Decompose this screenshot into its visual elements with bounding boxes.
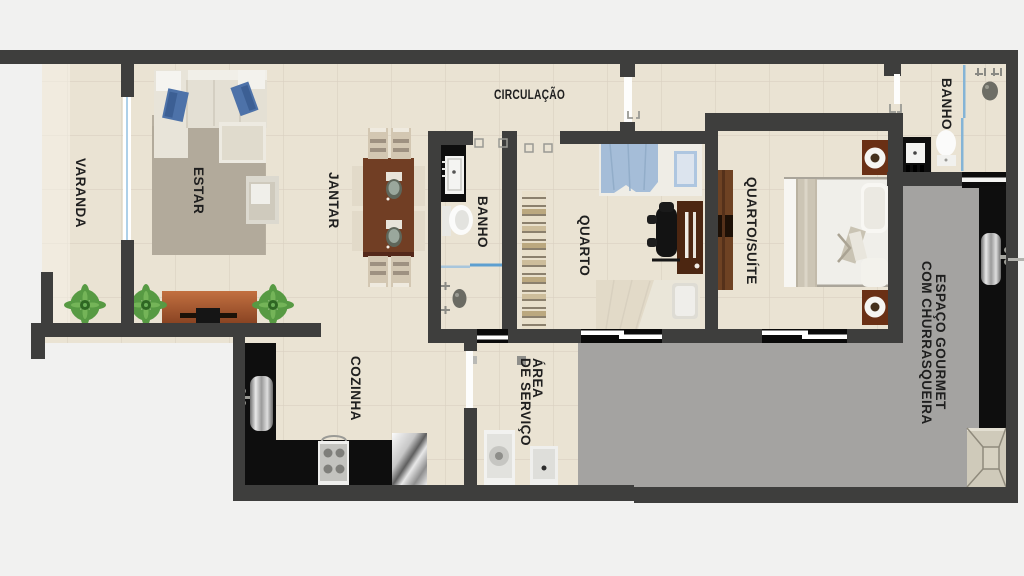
svg-text:BANHO: BANHO: [475, 196, 490, 248]
svg-text:COZINHA: COZINHA: [348, 356, 363, 421]
svg-text:QUARTO/SUÍTE: QUARTO/SUÍTE: [744, 177, 759, 285]
svg-text:BANHO: BANHO: [939, 78, 954, 130]
svg-text:JANTAR: JANTAR: [326, 172, 341, 229]
svg-text:CIRCULAÇÃO: CIRCULAÇÃO: [494, 85, 565, 102]
svg-text:ESTAR: ESTAR: [191, 167, 206, 214]
svg-text:COM CHURRASQUEIRA: COM CHURRASQUEIRA: [919, 261, 934, 425]
svg-text:DE SERVIÇO: DE SERVIÇO: [518, 358, 533, 446]
svg-text:ESPAÇO GOURMET: ESPAÇO GOURMET: [933, 274, 948, 410]
svg-text:QUARTO: QUARTO: [577, 215, 592, 276]
svg-text:VARANDA: VARANDA: [73, 158, 88, 228]
